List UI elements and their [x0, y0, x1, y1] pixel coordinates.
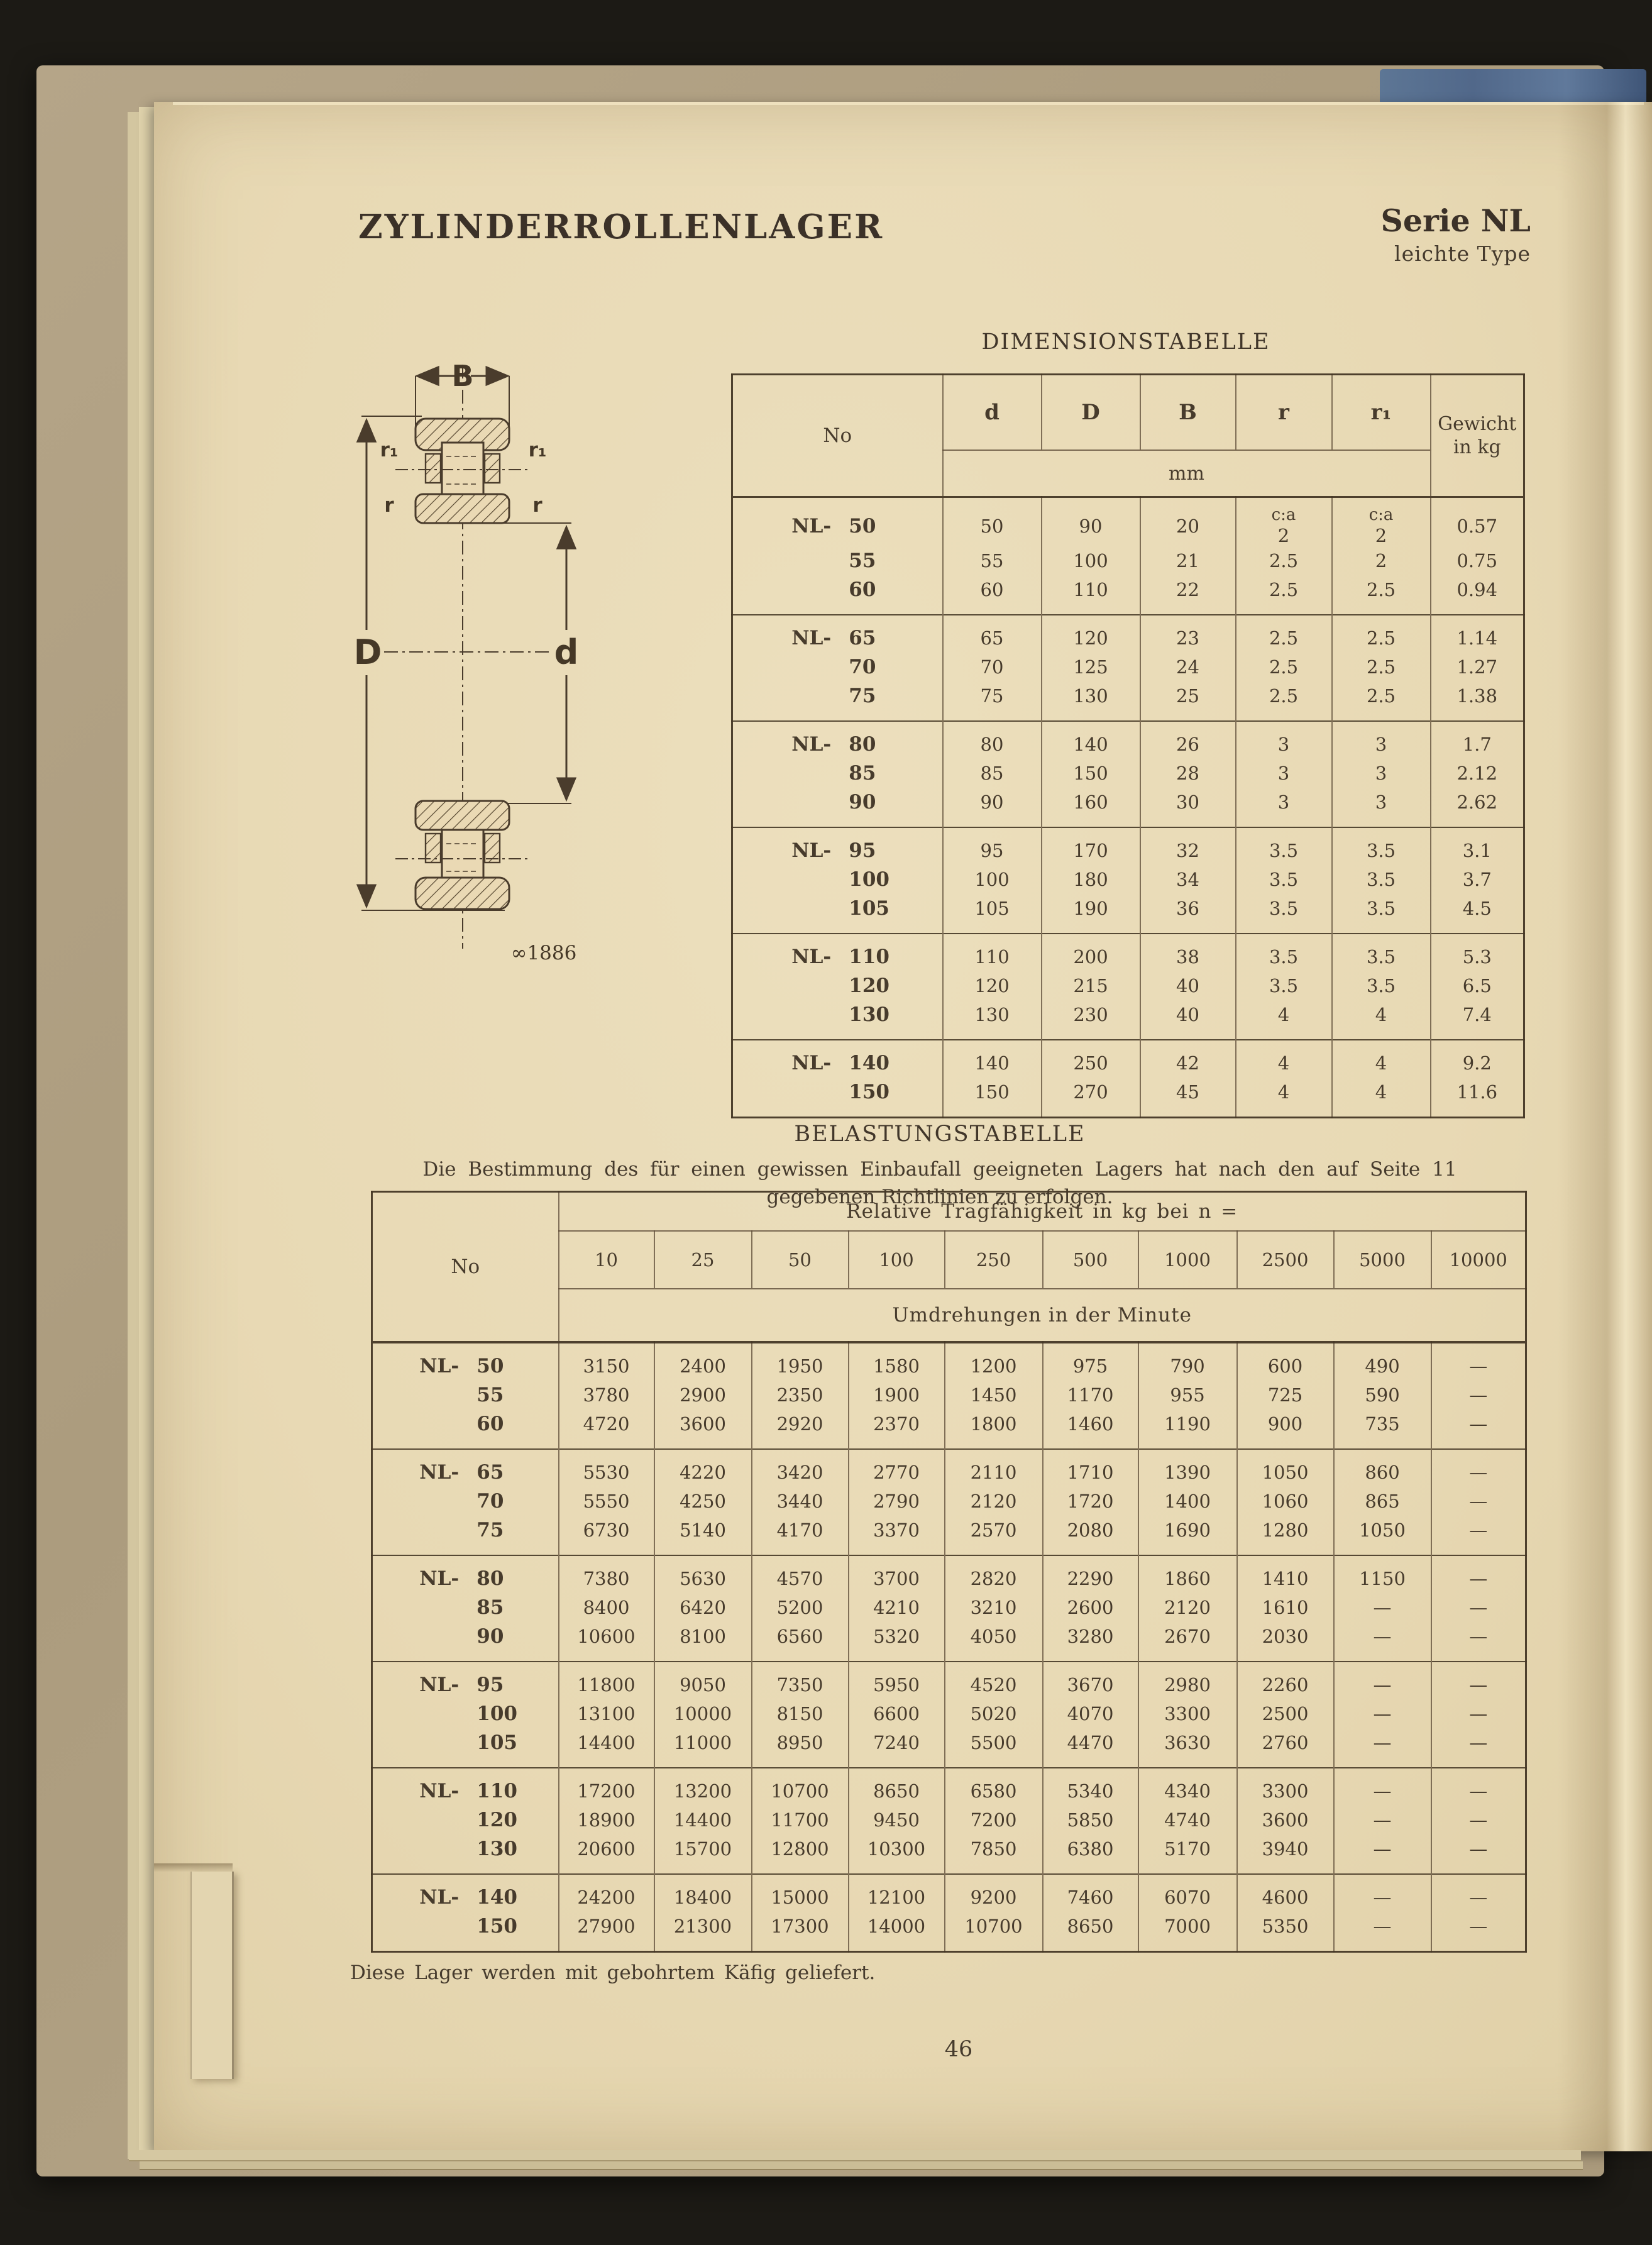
load-cell-n5000: — [1334, 1699, 1431, 1728]
dim-cell-D: 200 [1042, 934, 1140, 971]
dim-cell-B: 26 [1140, 721, 1236, 759]
dim-cell-r: 2.5 [1236, 653, 1332, 681]
row-prefix [773, 974, 831, 997]
load-no-cell: NL-80 [372, 1555, 559, 1593]
dim-cell-B: 23 [1140, 615, 1236, 653]
dim-cell-r1: 3.5 [1332, 865, 1431, 894]
row-number: 110 [476, 1780, 529, 1802]
load-no-cell: 100 [372, 1699, 559, 1728]
row-number: 75 [849, 685, 901, 707]
load-cell-n2500: 5350 [1237, 1912, 1334, 1952]
dim-cell-r: 4 [1236, 1040, 1332, 1078]
dim-cell-r1: 2.5 [1332, 681, 1431, 721]
load-cell-n5000: — [1334, 1662, 1431, 1699]
load-cell-n10: 5550 [559, 1487, 654, 1516]
row-prefix [401, 1596, 459, 1619]
scanned-book-photo: ZYLINDERROLLENLAGER Serie NL leichte Typ… [0, 0, 1652, 2245]
load-cell-n1000: 2670 [1138, 1622, 1237, 1662]
load-cell-n2500: 2260 [1237, 1662, 1334, 1699]
load-cell-n10000: — [1431, 1699, 1526, 1728]
dim-cell-weight: 7.4 [1431, 1000, 1524, 1040]
row-number: 150 [849, 1081, 901, 1103]
load-cell-n100: 4210 [849, 1593, 945, 1622]
load-cell-n2500: 1610 [1237, 1593, 1334, 1622]
load-cell-n25: 2900 [654, 1381, 752, 1409]
load-cell-n500: 2290 [1043, 1555, 1138, 1593]
load-cell-n50: 3420 [752, 1449, 849, 1487]
row-prefix [401, 1625, 459, 1648]
load-cell-n5000: 490 [1334, 1342, 1431, 1381]
load-cell-n250: 5500 [945, 1728, 1043, 1768]
dim-cell-D: 170 [1042, 827, 1140, 865]
row-prefix [401, 1413, 459, 1435]
load-cell-n1000: 3300 [1138, 1699, 1237, 1728]
load-cell-n250: 10700 [945, 1912, 1043, 1952]
load-cell-n10: 7380 [559, 1555, 654, 1593]
dim-cell-r1: 3 [1332, 759, 1431, 788]
page-bottom-edge [129, 2150, 1581, 2161]
ca-label: c:a [1333, 506, 1430, 524]
load-cell-n500: 1710 [1043, 1449, 1138, 1487]
dim-no-cell: NL-110 [732, 934, 943, 971]
dim-cell-weight: 6.5 [1431, 971, 1524, 1000]
dim-no-cell: 85 [732, 759, 943, 788]
load-header-speed-100: 100 [849, 1231, 945, 1289]
dim-table-row: NL-9595170323.53.53.1 [732, 827, 1524, 865]
load-cell-n100: 2770 [849, 1449, 945, 1487]
row-number: 85 [849, 762, 901, 785]
book-page: ZYLINDERROLLENLAGER Serie NL leichte Typ… [154, 102, 1652, 2151]
dim-no-cell: NL-95 [732, 827, 943, 865]
load-cell-n250: 3210 [945, 1593, 1043, 1622]
load-cell-n10: 17200 [559, 1768, 654, 1806]
load-cell-n250: 9200 [945, 1874, 1043, 1912]
load-cell-n10: 27900 [559, 1912, 654, 1952]
load-cell-n100: 5320 [849, 1622, 945, 1662]
row-number: 55 [849, 549, 901, 572]
dim-cell-B: 38 [1140, 934, 1236, 971]
dim-cell-r: 3 [1236, 721, 1332, 759]
load-cell-n50: 5200 [752, 1593, 849, 1622]
row-number: 120 [476, 1809, 529, 1831]
row-number: 60 [476, 1413, 529, 1435]
load-cell-n1000: 1400 [1138, 1487, 1237, 1516]
row-number: 95 [476, 1674, 529, 1696]
load-cell-n250: 5020 [945, 1699, 1043, 1728]
dim-table-row: 150150270454411.6 [732, 1078, 1524, 1118]
dimension-table: NodDBrr₁Gewicht in kgmmNL-50509020c:a2c:… [731, 373, 1525, 1118]
dim-cell-weight: 1.14 [1431, 615, 1524, 653]
load-cell-n5000: 860 [1334, 1449, 1431, 1487]
dim-cell-D: 140 [1042, 721, 1140, 759]
dim-cell-r: 3 [1236, 759, 1332, 788]
figure-label-D: D [354, 632, 382, 672]
load-table-row: 12018900144001170094507200585047403600—— [372, 1806, 1526, 1834]
dim-cell-D: 190 [1042, 894, 1140, 934]
load-table: NoRelative Tragfähigkeit in kg bei n =10… [371, 1191, 1527, 1953]
row-number: 90 [476, 1625, 529, 1648]
row-number: 80 [476, 1567, 529, 1590]
load-cell-n10000: — [1431, 1487, 1526, 1516]
dim-no-cell: 55 [732, 546, 943, 575]
bearing-cross-section-figure: B r₁ r₁ r r D d ∞1886 [354, 361, 588, 966]
load-cell-n5000: — [1334, 1728, 1431, 1768]
load-no-cell: NL-65 [372, 1449, 559, 1487]
load-cell-n1000: 1190 [1138, 1409, 1237, 1449]
dim-cell-r1: 4 [1332, 1000, 1431, 1040]
dim-table-row: 105105190363.53.54.5 [732, 894, 1524, 934]
dim-cell-r1: 3.5 [1332, 894, 1431, 934]
load-cell-n500: 6380 [1043, 1834, 1138, 1874]
row-prefix [773, 656, 831, 678]
dim-table-row: NL-6565120232.52.51.14 [732, 615, 1524, 653]
load-cell-n2500: 2030 [1237, 1622, 1334, 1662]
dim-cell-r1: 3.5 [1332, 934, 1431, 971]
dim-cell-r1: 4 [1332, 1078, 1431, 1118]
load-cell-n10: 13100 [559, 1699, 654, 1728]
load-cell-n250: 1800 [945, 1409, 1043, 1449]
load-no-cell: 120 [372, 1806, 559, 1834]
row-number: 95 [849, 839, 901, 862]
load-cell-n500: 8650 [1043, 1912, 1138, 1952]
load-cell-n250: 1200 [945, 1342, 1043, 1381]
load-no-cell: NL-140 [372, 1874, 559, 1912]
load-cell-n10000: — [1431, 1768, 1526, 1806]
row-number: 100 [849, 868, 901, 891]
load-no-cell: 105 [372, 1728, 559, 1768]
load-cell-n250: 1450 [945, 1381, 1043, 1409]
row-prefix [401, 1519, 459, 1542]
loadtable: NoRelative Tragfähigkeit in kg bei n =10… [371, 1191, 1527, 1953]
dim-cell-weight: 0.57 [1431, 497, 1524, 546]
load-cell-n250: 4520 [945, 1662, 1043, 1699]
row-prefix: NL- [773, 627, 831, 649]
dim-cell-d: 80 [943, 721, 1042, 759]
row-prefix: NL- [401, 1567, 459, 1590]
load-cell-n2500: 3940 [1237, 1834, 1334, 1874]
load-cell-n10: 3780 [559, 1381, 654, 1409]
load-cell-n2500: 1410 [1237, 1555, 1334, 1593]
load-cell-n10: 20600 [559, 1834, 654, 1874]
load-cell-n500: 1170 [1043, 1381, 1138, 1409]
dim-cell-weight: 3.1 [1431, 827, 1524, 865]
load-cell-n1000: 7000 [1138, 1912, 1237, 1952]
load-cell-n1000: 6070 [1138, 1874, 1237, 1912]
dim-header-r1: r₁ [1332, 375, 1431, 451]
load-cell-n50: 12800 [752, 1834, 849, 1874]
dim-cell-D: 250 [1042, 1040, 1140, 1078]
row-number: 75 [476, 1519, 529, 1542]
row-prefix [773, 762, 831, 785]
page-title: ZYLINDERROLLENLAGER [358, 207, 884, 246]
load-cell-n10: 10600 [559, 1622, 654, 1662]
load-cell-n5000: — [1334, 1622, 1431, 1662]
row-prefix: NL- [773, 1052, 831, 1074]
row-prefix [401, 1731, 459, 1754]
load-cell-n500: 2080 [1043, 1516, 1138, 1555]
dim-cell-D: 90 [1042, 497, 1140, 546]
load-no-cell: 55 [372, 1381, 559, 1409]
dim-cell-B: 20 [1140, 497, 1236, 546]
load-cell-n5000: — [1334, 1912, 1431, 1952]
dim-table-row: 858515028332.12 [732, 759, 1524, 788]
dim-cell-weight: 1.38 [1431, 681, 1524, 721]
dim-header-no: No [732, 375, 943, 497]
row-number: 50 [849, 515, 901, 538]
load-cell-n10: 24200 [559, 1874, 654, 1912]
load-cell-n25: 14400 [654, 1806, 752, 1834]
dim-cell-D: 120 [1042, 615, 1140, 653]
dim-cell-weight: 3.7 [1431, 865, 1524, 894]
load-cell-n2500: 3600 [1237, 1806, 1334, 1834]
load-cell-n100: 12100 [849, 1874, 945, 1912]
load-cell-n25: 5630 [654, 1555, 752, 1593]
load-cell-n100: 3700 [849, 1555, 945, 1593]
dim-no-cell: 90 [732, 788, 943, 827]
dim-table-row: 100100180343.53.53.7 [732, 865, 1524, 894]
dim-cell-B: 22 [1140, 575, 1236, 615]
load-cell-n25: 15700 [654, 1834, 752, 1874]
load-no-cell: 150 [372, 1912, 559, 1952]
load-header-speed-10: 10 [559, 1231, 654, 1289]
row-prefix: NL- [773, 946, 831, 968]
dim-cell-weight: 2.12 [1431, 759, 1524, 788]
dim-no-cell: NL-50 [732, 497, 943, 546]
row-prefix: NL- [401, 1461, 459, 1484]
load-cell-n25: 5140 [654, 1516, 752, 1555]
row-number: 65 [476, 1461, 529, 1484]
load-cell-n500: 1720 [1043, 1487, 1138, 1516]
load-table-row: NL-5031502400195015801200975790600490— [372, 1342, 1526, 1381]
load-cell-n100: 3370 [849, 1516, 945, 1555]
load-cell-n1000: 5170 [1138, 1834, 1237, 1874]
dim-header-D: D [1042, 375, 1140, 451]
load-cell-n5000: 735 [1334, 1409, 1431, 1449]
load-cell-n500: 2600 [1043, 1593, 1138, 1622]
dim-cell-B: 45 [1140, 1078, 1236, 1118]
load-header-speed-500: 500 [1043, 1231, 1138, 1289]
load-cell-n25: 3600 [654, 1409, 752, 1449]
load-cell-n1000: 1390 [1138, 1449, 1237, 1487]
load-cell-n500: 5850 [1043, 1806, 1138, 1834]
dim-value: 2 [1333, 526, 1430, 546]
load-cell-n100: 6600 [849, 1699, 945, 1728]
dim-header-B: B [1140, 375, 1236, 451]
load-table-row: NL-6555304220342027702110171013901050860… [372, 1449, 1526, 1487]
dim-cell-D: 130 [1042, 681, 1140, 721]
dim-cell-r: 2.5 [1236, 546, 1332, 575]
dim-cell-B: 34 [1140, 865, 1236, 894]
load-cell-n10: 11800 [559, 1662, 654, 1699]
load-cell-n10000: — [1431, 1555, 1526, 1593]
dim-cell-B: 32 [1140, 827, 1236, 865]
dim-cell-r: 3.5 [1236, 971, 1332, 1000]
row-number: 130 [849, 1003, 901, 1026]
load-cell-n2500: 900 [1237, 1409, 1334, 1449]
load-cell-n5000: 865 [1334, 1487, 1431, 1516]
dim-cell-weight: 1.27 [1431, 653, 1524, 681]
dim-cell-weight: 11.6 [1431, 1078, 1524, 1118]
load-cell-n10000: — [1431, 1874, 1526, 1912]
dim-cell-D: 150 [1042, 759, 1140, 788]
load-cell-n100: 1900 [849, 1381, 945, 1409]
dim-cell-r: 4 [1236, 1078, 1332, 1118]
dim-cell-weight: 2.62 [1431, 788, 1524, 827]
row-prefix: NL- [401, 1886, 459, 1909]
load-cell-n10000: — [1431, 1834, 1526, 1874]
dim-cell-d: 70 [943, 653, 1042, 681]
load-no-cell: 90 [372, 1622, 559, 1662]
page-stack-notch [190, 1872, 234, 2079]
dim-cell-weight: 0.94 [1431, 575, 1524, 615]
dim-cell-d: 90 [943, 788, 1042, 827]
row-number: 90 [849, 791, 901, 814]
load-cell-n25: 9050 [654, 1662, 752, 1699]
load-cell-n25: 4220 [654, 1449, 752, 1487]
load-cell-n250: 7200 [945, 1806, 1043, 1834]
load-table-row: 130206001570012800103007850638051703940—… [372, 1834, 1526, 1874]
row-prefix [773, 578, 831, 601]
load-cell-n50: 4570 [752, 1555, 849, 1593]
row-prefix: NL- [773, 839, 831, 862]
load-cell-n250: 2820 [945, 1555, 1043, 1593]
row-number: 70 [849, 656, 901, 678]
dim-cell-r: 3.5 [1236, 865, 1332, 894]
load-cell-n50: 15000 [752, 1874, 849, 1912]
intro-line-1: Die Bestimmung des für einen gewissen Ei… [349, 1156, 1531, 1183]
load-cell-n10: 4720 [559, 1409, 654, 1449]
row-prefix [401, 1838, 459, 1860]
load-cell-n1000: 4740 [1138, 1806, 1237, 1834]
load-cell-n250: 2570 [945, 1516, 1043, 1555]
load-cell-n500: 1460 [1043, 1409, 1138, 1449]
load-no-cell: NL-95 [372, 1662, 559, 1699]
dim-cell-B: 24 [1140, 653, 1236, 681]
load-cell-n5000: 590 [1334, 1381, 1431, 1409]
row-prefix [401, 1809, 459, 1831]
dim-cell-r1: c:a2 [1332, 497, 1431, 546]
dim-cell-r1: 2.5 [1332, 575, 1431, 615]
dim-cell-D: 160 [1042, 788, 1140, 827]
load-no-cell: 85 [372, 1593, 559, 1622]
dim-cell-D: 215 [1042, 971, 1140, 1000]
load-cell-n50: 2920 [752, 1409, 849, 1449]
dim-table-row: 7575130252.52.51.38 [732, 681, 1524, 721]
load-table-row: 1051440011000895072405500447036302760—— [372, 1728, 1526, 1768]
load-table-row: 8584006420520042103210260021201610—— [372, 1593, 1526, 1622]
page-corner-shadow [154, 1863, 233, 1872]
dim-cell-r1: 3.5 [1332, 827, 1431, 865]
load-cell-n5000: 1050 [1334, 1516, 1431, 1555]
load-no-cell: 75 [372, 1516, 559, 1555]
dim-table-row: 120120215403.53.56.5 [732, 971, 1524, 1000]
load-cell-n5000: — [1334, 1768, 1431, 1806]
dim-cell-d: 65 [943, 615, 1042, 653]
load-cell-n100: 2370 [849, 1409, 945, 1449]
dim-cell-weight: 0.75 [1431, 546, 1524, 575]
load-cell-n25: 13200 [654, 1768, 752, 1806]
row-prefix: NL- [401, 1780, 459, 1802]
dim-no-cell: NL-140 [732, 1040, 943, 1078]
dim-cell-r: 2.5 [1236, 575, 1332, 615]
load-cell-n10: 6730 [559, 1516, 654, 1555]
dim-cell-d: 55 [943, 546, 1042, 575]
load-cell-n25: 10000 [654, 1699, 752, 1728]
dim-cell-B: 30 [1140, 788, 1236, 827]
dimtable: NodDBrr₁Gewicht in kgmmNL-50509020c:a2c:… [731, 373, 1525, 1118]
dim-cell-r: 3.5 [1236, 894, 1332, 934]
row-number: 70 [476, 1490, 529, 1513]
load-table-row: 90106008100656053204050328026702030—— [372, 1622, 1526, 1662]
load-cell-n2500: 725 [1237, 1381, 1334, 1409]
load-cell-n250: 6580 [945, 1768, 1043, 1806]
load-cell-n50: 10700 [752, 1768, 849, 1806]
load-header-speed-250: 250 [945, 1231, 1043, 1289]
dim-cell-weight: 9.2 [1431, 1040, 1524, 1078]
dim-cell-r: 2.5 [1236, 615, 1332, 653]
load-cell-n100: 7240 [849, 1728, 945, 1768]
load-cell-n100: 1580 [849, 1342, 945, 1381]
load-cell-n500: 3280 [1043, 1622, 1138, 1662]
row-prefix [401, 1384, 459, 1406]
load-cell-n2500: 4600 [1237, 1874, 1334, 1912]
dim-cell-d: 140 [943, 1040, 1042, 1078]
load-cell-n250: 4050 [945, 1622, 1043, 1662]
row-number: 140 [849, 1052, 901, 1074]
dim-table-row: NL-50509020c:a2c:a20.57 [732, 497, 1524, 546]
dim-table-row: 909016030332.62 [732, 788, 1524, 827]
figure-label-r1-left: r₁ [380, 439, 399, 461]
load-cell-n10000: — [1431, 1912, 1526, 1952]
load-cell-n50: 3440 [752, 1487, 849, 1516]
dim-no-cell: NL-80 [732, 721, 943, 759]
load-header-speed-25: 25 [654, 1231, 752, 1289]
row-prefix [773, 897, 831, 920]
dim-table-row: 6060110222.52.50.94 [732, 575, 1524, 615]
dim-table-row: NL-14014025042449.2 [732, 1040, 1524, 1078]
footer-note: Diese Lager werden mit gebohrtem Käfig g… [350, 1961, 875, 1984]
load-cell-n10: 5530 [559, 1449, 654, 1487]
dim-cell-d: 60 [943, 575, 1042, 615]
figure-label-d: d [554, 632, 579, 672]
load-header-speed-1000: 1000 [1138, 1231, 1237, 1289]
load-cell-n5000: — [1334, 1593, 1431, 1622]
dim-cell-d: 120 [943, 971, 1042, 1000]
row-prefix [773, 1003, 831, 1026]
dim-cell-r: 3.5 [1236, 934, 1332, 971]
row-prefix: NL- [773, 515, 831, 538]
load-no-cell: NL-50 [372, 1342, 559, 1381]
load-cell-n10000: — [1431, 1662, 1526, 1699]
load-cell-n10000: — [1431, 1342, 1526, 1381]
load-cell-n100: 14000 [849, 1912, 945, 1952]
load-header-speed-5000: 5000 [1334, 1231, 1431, 1289]
row-number: 110 [849, 946, 901, 968]
figure-label-r-right: r [532, 494, 542, 517]
load-header-span: Relative Tragfähigkeit in kg bei n = [559, 1192, 1526, 1232]
page-number: 46 [877, 2037, 1040, 2062]
series-block: Serie NL leichte Type [1254, 202, 1531, 266]
load-table-row: 75673051404170337025702080169012801050— [372, 1516, 1526, 1555]
dim-cell-r1: 3 [1332, 788, 1431, 827]
row-number: 120 [849, 974, 901, 997]
load-cell-n50: 17300 [752, 1912, 849, 1952]
load-cell-n250: 2110 [945, 1449, 1043, 1487]
row-number: 150 [476, 1915, 529, 1938]
dim-cell-r1: 3.5 [1332, 971, 1431, 1000]
row-number: 100 [476, 1702, 529, 1725]
load-cell-n100: 5950 [849, 1662, 945, 1699]
